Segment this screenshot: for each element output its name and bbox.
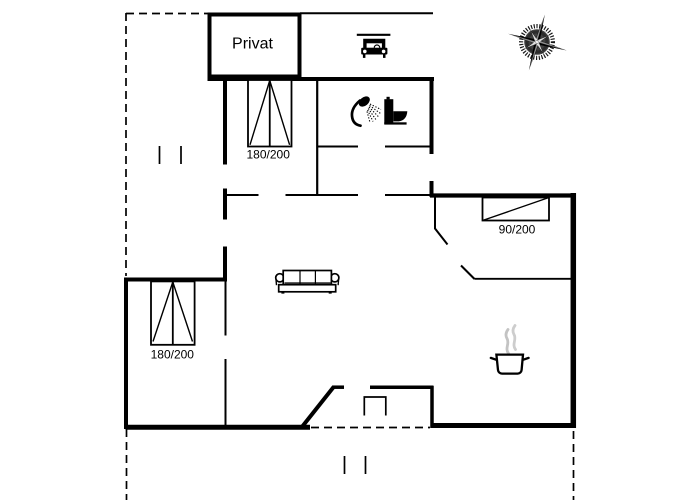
svg-text:90/200: 90/200 [499,223,536,237]
svg-text:Privat: Privat [232,36,273,53]
svg-text:180/200: 180/200 [247,148,291,162]
svg-text:180/200: 180/200 [151,347,195,361]
